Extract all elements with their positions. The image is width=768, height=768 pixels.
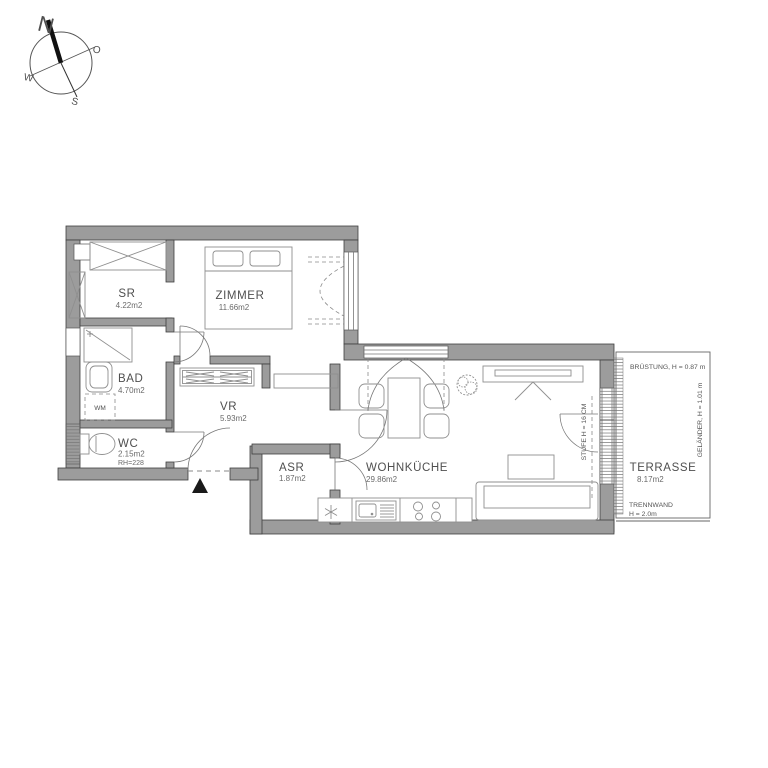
room-area-asr: 1.87m2 — [279, 474, 306, 483]
wall-asr-top — [252, 444, 340, 454]
wall-zimmer-vr-b — [210, 356, 270, 364]
room-area-wc: 2.15m2 — [118, 450, 145, 459]
wall-column — [262, 364, 270, 388]
room-vr: VR 5.93m2 — [220, 401, 247, 423]
room-name-bad: BAD — [118, 373, 143, 385]
room-zimmer: ZIMMER 11.66m2 — [216, 290, 265, 312]
wc-door — [174, 432, 204, 462]
wall-vr-wk-stub — [330, 364, 340, 410]
sideboard — [274, 374, 338, 388]
floor-plan-canvas: N O W S — [0, 0, 768, 768]
zimmer-door — [180, 326, 210, 356]
room-area-terrasse: 8.17m2 — [637, 475, 664, 484]
gelaender-label: GELÄNDER, H = 1.01 m — [696, 382, 704, 457]
terrace-grate — [614, 358, 623, 514]
wall-zimmer-vr-a — [174, 356, 180, 364]
room-asr: ASR 1.87m2 — [279, 462, 306, 483]
plant — [457, 375, 477, 395]
room-area-bad: 4.70m2 — [118, 386, 145, 395]
tv-board — [483, 366, 583, 400]
room-wc: WC 2.15m2 RH=228 — [118, 438, 145, 467]
bed — [205, 247, 292, 329]
wall-entry-right — [230, 468, 258, 480]
vr-shelf — [180, 368, 254, 386]
compass-label-west: W — [23, 72, 35, 85]
wall-wc-vr-stub — [166, 462, 174, 468]
room-name-zimmer: ZIMMER — [216, 290, 265, 302]
room-name-wc: WC — [118, 438, 138, 450]
trennwand-label-1: TRENNWAND — [629, 502, 673, 509]
sofa — [476, 482, 598, 520]
shower — [84, 328, 132, 362]
wall-sr-zimmer — [166, 240, 174, 282]
room-name-sr: SR — [118, 288, 135, 300]
stufe-label: STUFE H = 16 CM — [581, 403, 588, 460]
dining-set — [359, 378, 449, 438]
compass-needle-south — [61, 63, 77, 97]
west-wall-opening — [66, 328, 80, 356]
zimmer-window — [308, 252, 358, 330]
wall-entry-left — [58, 468, 188, 480]
room-area-wohnkueche: 29.86m2 — [366, 475, 398, 484]
kitchen-counter — [318, 498, 472, 522]
coffee-table — [508, 455, 554, 479]
washing-machine-label: WM — [94, 405, 106, 412]
room-height-wc: RH=228 — [118, 460, 144, 467]
room-wohnkueche: WOHNKÜCHE 29.86m2 — [366, 462, 448, 484]
compass-label-south: S — [70, 96, 79, 108]
trennwand-label-2: H = 2.0m — [629, 511, 657, 518]
wall-sr-bad — [80, 318, 172, 326]
wall-asr-right-a — [330, 444, 340, 458]
wall-bad-vr-a — [166, 318, 174, 332]
room-area-sr: 4.22m2 — [116, 301, 143, 310]
entrance-door — [188, 428, 230, 493]
room-sr: SR 4.22m2 — [116, 288, 143, 310]
wall-bad-wc — [80, 420, 172, 428]
terrace: BRÜSTUNG, H = 0.87 m GELÄNDER, H = 1.01 … — [614, 352, 710, 521]
room-name-vr: VR — [220, 401, 237, 413]
room-area-zimmer: 11.66m2 — [219, 303, 250, 312]
room-bad: BAD 4.70m2 — [118, 373, 145, 395]
washing-machine: WM — [85, 394, 115, 420]
entrance-arrow — [192, 478, 208, 493]
washbasin — [86, 362, 112, 392]
compass-rose: N O W S — [23, 11, 102, 109]
terrace-door — [560, 396, 598, 500]
west-wall-shaft — [66, 424, 80, 464]
room-name-wohnkueche: WOHNKÜCHE — [366, 462, 448, 474]
room-name-asr: ASR — [279, 462, 304, 474]
room-name-terrasse: TERRASSE — [630, 462, 697, 474]
bruestung-label: BRÜSTUNG, H = 0.87 m — [630, 363, 706, 371]
floor-plan-page: N O W S — [0, 0, 768, 768]
wall-top — [66, 226, 358, 240]
asr-door — [335, 458, 367, 490]
compass-label-east: O — [92, 44, 102, 56]
toilet — [80, 434, 115, 455]
corner-niche — [74, 244, 90, 260]
sr-wardrobe — [90, 242, 166, 270]
room-area-vr: 5.93m2 — [220, 414, 247, 423]
terrace-glazing — [600, 388, 614, 484]
wall-lower-left — [250, 446, 262, 534]
